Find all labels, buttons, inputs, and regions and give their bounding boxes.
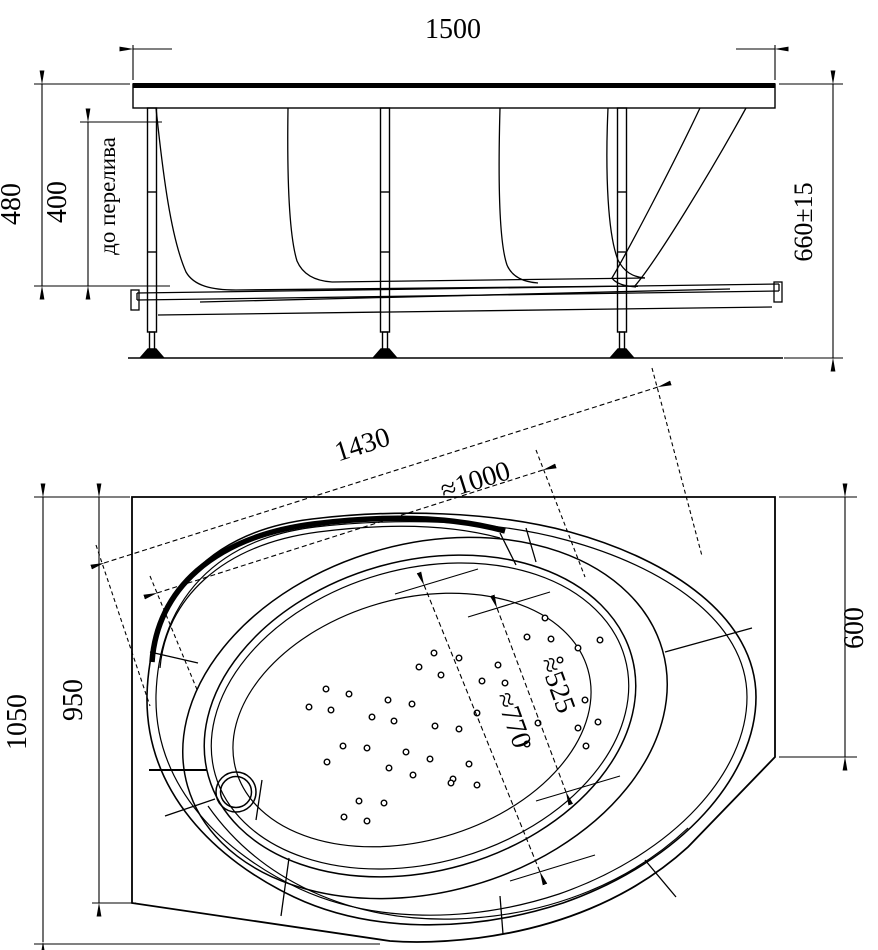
jet-hole — [466, 761, 472, 767]
dim-950 — [92, 497, 136, 903]
dim-660-label: 660±15 — [789, 182, 818, 261]
jet-hole — [381, 800, 387, 806]
jet-hole — [583, 743, 589, 749]
jet-hole — [427, 756, 433, 762]
jet-hole — [495, 662, 501, 668]
dim-400 — [80, 122, 162, 286]
jet-hole — [391, 718, 397, 724]
jet-hole — [542, 615, 548, 621]
bathtub-technical-drawing: 1500 480 400 до перелива 660±15 1430 ≈10… — [0, 0, 878, 950]
jet-hole — [479, 678, 485, 684]
jet-hole — [431, 650, 437, 656]
jet-hole — [448, 780, 454, 786]
dim-1050-label: 1050 — [2, 694, 33, 750]
tub-bowl-profile — [156, 108, 746, 290]
dimension-labels: 1500 480 400 до перелива 660±15 1430 ≈10… — [0, 14, 870, 752]
jet-holes — [306, 615, 603, 824]
jet-hole — [595, 719, 601, 725]
jet-hole — [364, 745, 370, 751]
side-elevation-view — [34, 45, 843, 358]
jet-hole — [456, 655, 462, 661]
drawing-sheet: 1500 480 400 до перелива 660±15 1430 ≈10… — [0, 0, 878, 950]
dim-400-label: 400 — [42, 181, 73, 223]
jet-hole — [410, 772, 416, 778]
jet-hole — [346, 691, 352, 697]
tub-rim-top-edge — [133, 83, 775, 88]
jet-hole — [582, 697, 588, 703]
headrest-arc — [152, 518, 505, 662]
jet-hole — [340, 743, 346, 749]
jet-hole — [386, 765, 392, 771]
jet-hole — [356, 798, 362, 804]
frame-leg-right — [611, 108, 633, 357]
apron-step-arc — [208, 806, 688, 919]
plan-view — [34, 368, 857, 950]
panel-outline — [132, 497, 775, 942]
frame-rails — [131, 282, 782, 315]
jet-hole — [328, 707, 334, 713]
jet-hole — [432, 723, 438, 729]
dim-1430 — [96, 368, 702, 706]
jet-hole — [502, 680, 508, 686]
dim-1000-label: ≈1000 — [437, 455, 514, 506]
dim-480-label: 480 — [0, 183, 27, 225]
rim-outer-edge — [147, 513, 756, 925]
jet-hole — [385, 697, 391, 703]
dim-950-label: 950 — [58, 679, 89, 721]
jet-hole — [409, 701, 415, 707]
jet-hole — [548, 636, 554, 642]
jet-hole — [364, 818, 370, 824]
jet-hole — [524, 634, 530, 640]
jet-hole — [456, 726, 462, 732]
dim-1430-label: 1430 — [331, 422, 394, 468]
dim-770 — [395, 569, 595, 881]
jet-hole — [403, 749, 409, 755]
basin-bottom — [203, 553, 622, 887]
jet-hole — [575, 725, 581, 731]
dim-1500 — [133, 45, 775, 80]
dim-600-label: 600 — [839, 607, 870, 649]
jet-hole — [575, 645, 581, 651]
jet-hole — [438, 672, 444, 678]
overflow-note-label: до перелива — [95, 137, 120, 255]
rim-outer-edge-inner-line — [156, 522, 747, 916]
jet-hole — [323, 686, 329, 692]
jet-hole — [416, 664, 422, 670]
jet-hole — [306, 704, 312, 710]
jet-hole — [369, 714, 375, 720]
dim-525-label: ≈525 — [533, 653, 582, 718]
dim-770-label: ≈770 — [489, 688, 538, 753]
dim-1500-label: 1500 — [425, 14, 481, 45]
jet-hole — [597, 637, 603, 643]
frame-leg-center — [374, 108, 396, 357]
jet-hole — [324, 759, 330, 765]
jet-hole — [474, 782, 480, 788]
jet-hole — [341, 814, 347, 820]
